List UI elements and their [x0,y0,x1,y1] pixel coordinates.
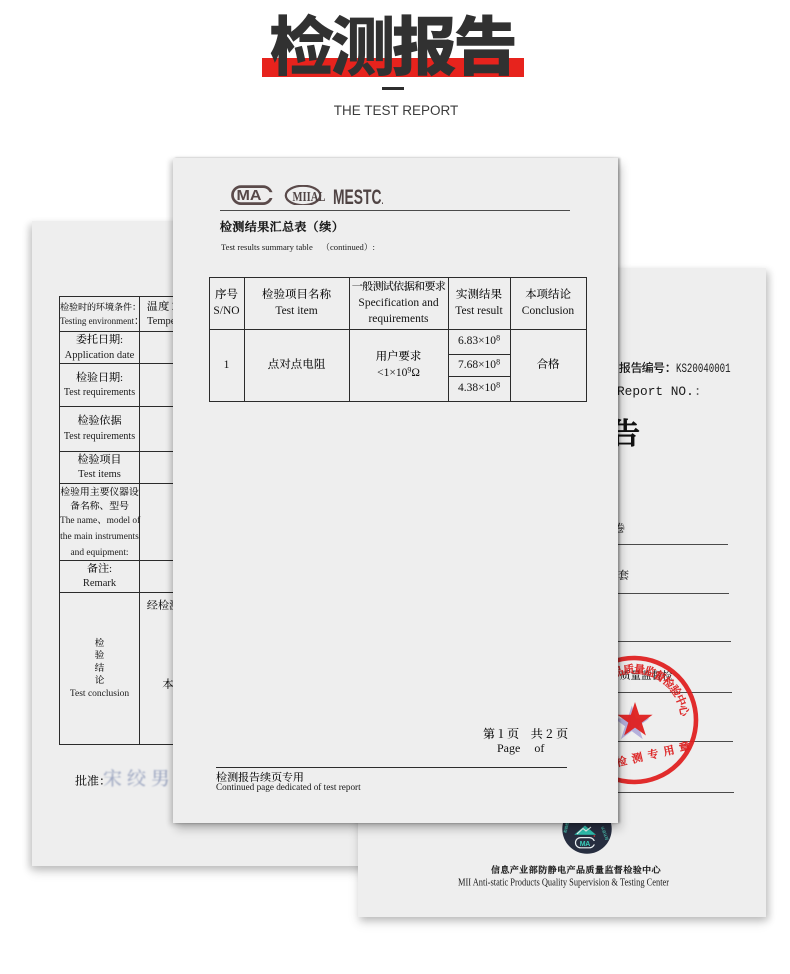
svg-text:MA: MA [579,841,590,848]
svg-text:检测专用章: 检测专用章 [614,737,697,771]
svg-text:MA: MA [237,188,263,204]
svg-text:MIIAL: MIIAL [293,189,326,204]
svg-text:心: 心 [675,704,693,718]
